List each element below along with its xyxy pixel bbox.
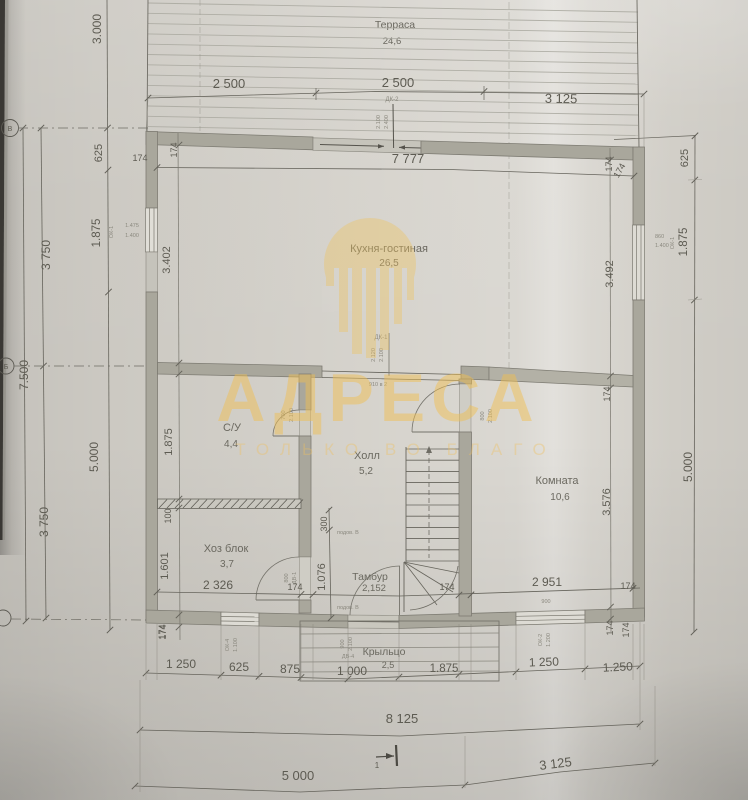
svg-text:1.100: 1.100 — [233, 638, 239, 652]
svg-text:174: 174 — [621, 622, 631, 637]
svg-text:2.100: 2.100 — [348, 637, 354, 651]
svg-text:3 125: 3 125 — [545, 91, 578, 107]
svg-text:3.402: 3.402 — [161, 246, 173, 274]
svg-text:1 250: 1 250 — [166, 657, 196, 671]
svg-text:2.100: 2.100 — [376, 115, 382, 129]
svg-text:625: 625 — [93, 144, 105, 162]
svg-text:подов. В: подов. В — [337, 530, 359, 536]
svg-text:875: 875 — [280, 662, 300, 676]
svg-text:3.492: 3.492 — [604, 260, 616, 288]
svg-text:2 500: 2 500 — [382, 75, 415, 90]
svg-text:ОК-1: ОК-1 — [670, 237, 676, 249]
svg-text:7.500: 7.500 — [17, 360, 31, 390]
svg-text:625: 625 — [679, 149, 691, 167]
svg-text:7 777: 7 777 — [392, 151, 425, 166]
svg-text:300: 300 — [319, 516, 329, 531]
svg-text:174: 174 — [132, 153, 147, 163]
svg-text:1 000: 1 000 — [337, 664, 367, 678]
svg-text:ТОЛЬКО ВО БЛАГО: ТОЛЬКО ВО БЛАГО — [235, 440, 556, 459]
svg-text:8 125: 8 125 — [386, 711, 419, 726]
svg-text:3,7: 3,7 — [220, 559, 234, 570]
svg-text:5.000: 5.000 — [681, 452, 695, 482]
svg-text:1.250: 1.250 — [602, 659, 633, 675]
svg-text:100: 100 — [163, 508, 173, 523]
svg-text:Б: Б — [4, 364, 9, 371]
svg-text:3 750: 3 750 — [39, 240, 53, 270]
svg-text:1.475: 1.475 — [125, 223, 139, 229]
svg-text:Терраса: Терраса — [375, 19, 415, 31]
svg-text:ОК-2: ОК-2 — [538, 634, 544, 646]
svg-text:174: 174 — [604, 156, 614, 171]
svg-text:1.875: 1.875 — [678, 228, 690, 257]
svg-text:2,5: 2,5 — [382, 660, 395, 670]
svg-text:3 125: 3 125 — [538, 754, 572, 773]
svg-text:3.576: 3.576 — [601, 488, 613, 516]
svg-text:5.000: 5.000 — [87, 442, 101, 472]
svg-text:1.601: 1.601 — [159, 552, 171, 580]
svg-text:Хоз блок: Хоз блок — [204, 543, 249, 555]
svg-text:5 000: 5 000 — [282, 768, 315, 783]
svg-text:10,6: 10,6 — [550, 492, 570, 503]
svg-text:1.875: 1.875 — [430, 663, 459, 675]
svg-text:ДК-2: ДК-2 — [386, 97, 400, 103]
svg-text:174: 174 — [287, 582, 302, 592]
svg-text:ОК-4: ОК-4 — [225, 639, 231, 651]
svg-text:3 750: 3 750 — [37, 507, 51, 537]
svg-text:174: 174 — [620, 581, 635, 591]
svg-text:1.200: 1.200 — [546, 633, 552, 647]
svg-text:1: 1 — [375, 761, 380, 770]
svg-text:1.400: 1.400 — [125, 233, 139, 239]
svg-text:5,2: 5,2 — [359, 466, 373, 477]
svg-text:174: 174 — [605, 620, 615, 635]
svg-text:174: 174 — [169, 142, 179, 157]
svg-text:Тамбур: Тамбур — [352, 571, 388, 583]
svg-text:860: 860 — [655, 234, 664, 240]
svg-text:1.400: 1.400 — [655, 243, 669, 249]
svg-text:1.875: 1.875 — [163, 428, 175, 456]
svg-text:1.875: 1.875 — [91, 219, 103, 248]
svg-text:ОК-1: ОК-1 — [109, 226, 115, 238]
svg-text:2.400: 2.400 — [384, 115, 390, 129]
svg-text:3.000: 3.000 — [90, 14, 104, 44]
svg-text:2 951: 2 951 — [532, 575, 562, 589]
svg-text:174: 174 — [157, 624, 167, 639]
svg-text:2,152: 2,152 — [362, 583, 386, 594]
svg-text:Комната: Комната — [535, 475, 579, 487]
svg-text:625: 625 — [229, 660, 249, 674]
svg-text:1 250: 1 250 — [529, 654, 560, 669]
svg-text:2 326: 2 326 — [203, 578, 233, 592]
svg-text:24,6: 24,6 — [383, 36, 402, 47]
svg-text:АДРЕСА: АДРЕСА — [216, 360, 539, 436]
svg-text:900: 900 — [340, 639, 346, 648]
svg-text:174: 174 — [602, 386, 612, 401]
svg-text:В: В — [8, 126, 13, 133]
svg-text:174: 174 — [439, 582, 454, 592]
svg-text:2 500: 2 500 — [213, 76, 246, 91]
svg-text:подов. В: подов. В — [337, 605, 359, 611]
svg-text:900: 900 — [541, 599, 550, 605]
svg-text:1.076: 1.076 — [316, 563, 328, 591]
